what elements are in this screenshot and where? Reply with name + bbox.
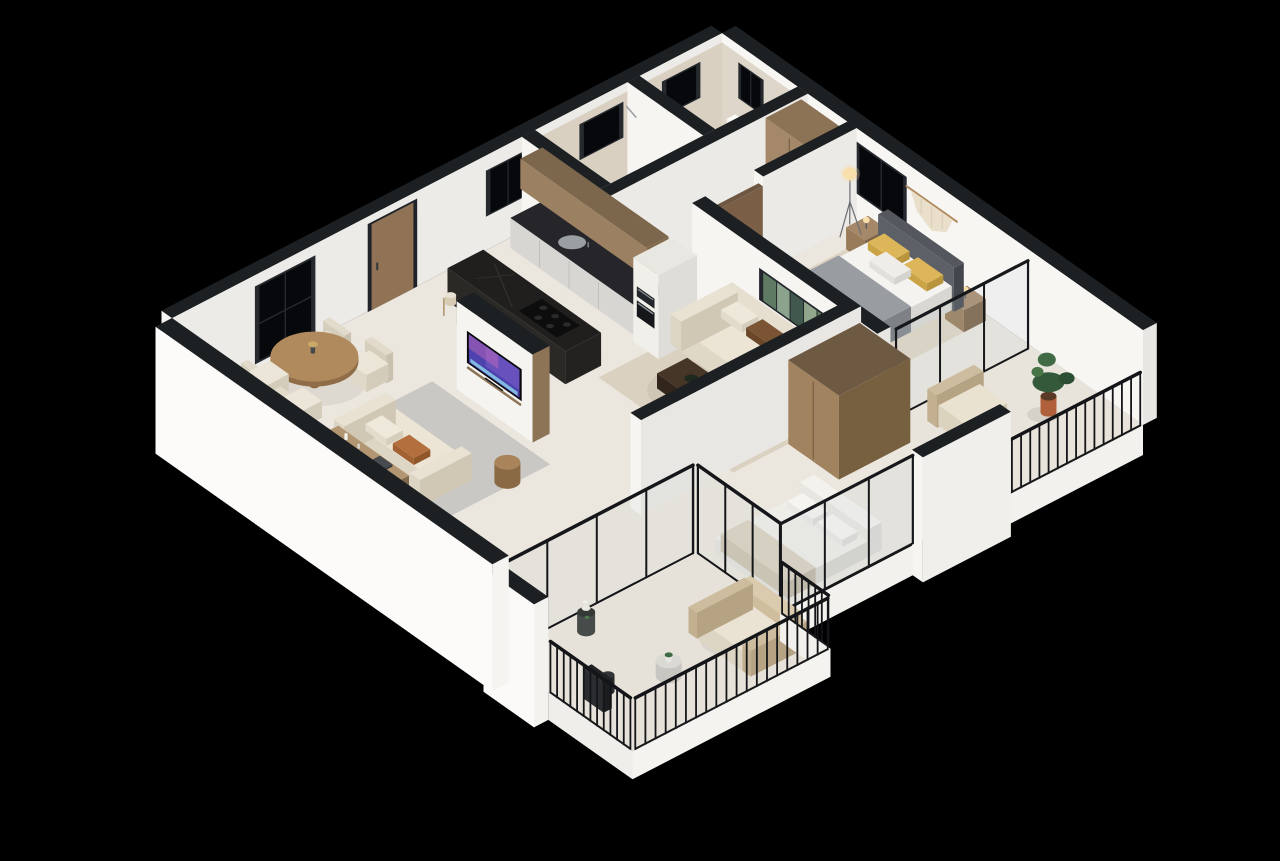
round-side-table (494, 455, 520, 470)
burner (546, 324, 554, 328)
burner (534, 316, 542, 320)
burner (551, 314, 559, 318)
kitchen-sink (558, 235, 586, 249)
floor-lamp-glow (843, 167, 857, 180)
console-vase (344, 433, 347, 435)
bar-stool (445, 292, 456, 298)
console-vase (357, 444, 359, 446)
plant-pot-terracotta (1040, 392, 1056, 401)
wall-exterior-northeast (1143, 323, 1157, 425)
wall-exterior-southwest (492, 556, 509, 692)
balcony-armchair-back (927, 389, 937, 428)
tv-partition-wall (533, 346, 550, 443)
wall-balcony-side (534, 597, 548, 728)
vase-flowers (308, 341, 318, 347)
planter-greens (665, 652, 673, 657)
flower-bouquet (582, 605, 591, 611)
floor-plan-stage (0, 0, 1280, 861)
burner (563, 322, 571, 326)
burner (539, 306, 547, 310)
plant-foliage (1059, 372, 1075, 384)
lamp-left-glow (863, 217, 870, 223)
plant-foliage (1038, 353, 1056, 367)
flower-greens (585, 616, 590, 619)
isometric-floor-plan-render (0, 0, 1280, 861)
flower-bouquet (583, 600, 587, 603)
plant-foliage (1032, 367, 1044, 377)
